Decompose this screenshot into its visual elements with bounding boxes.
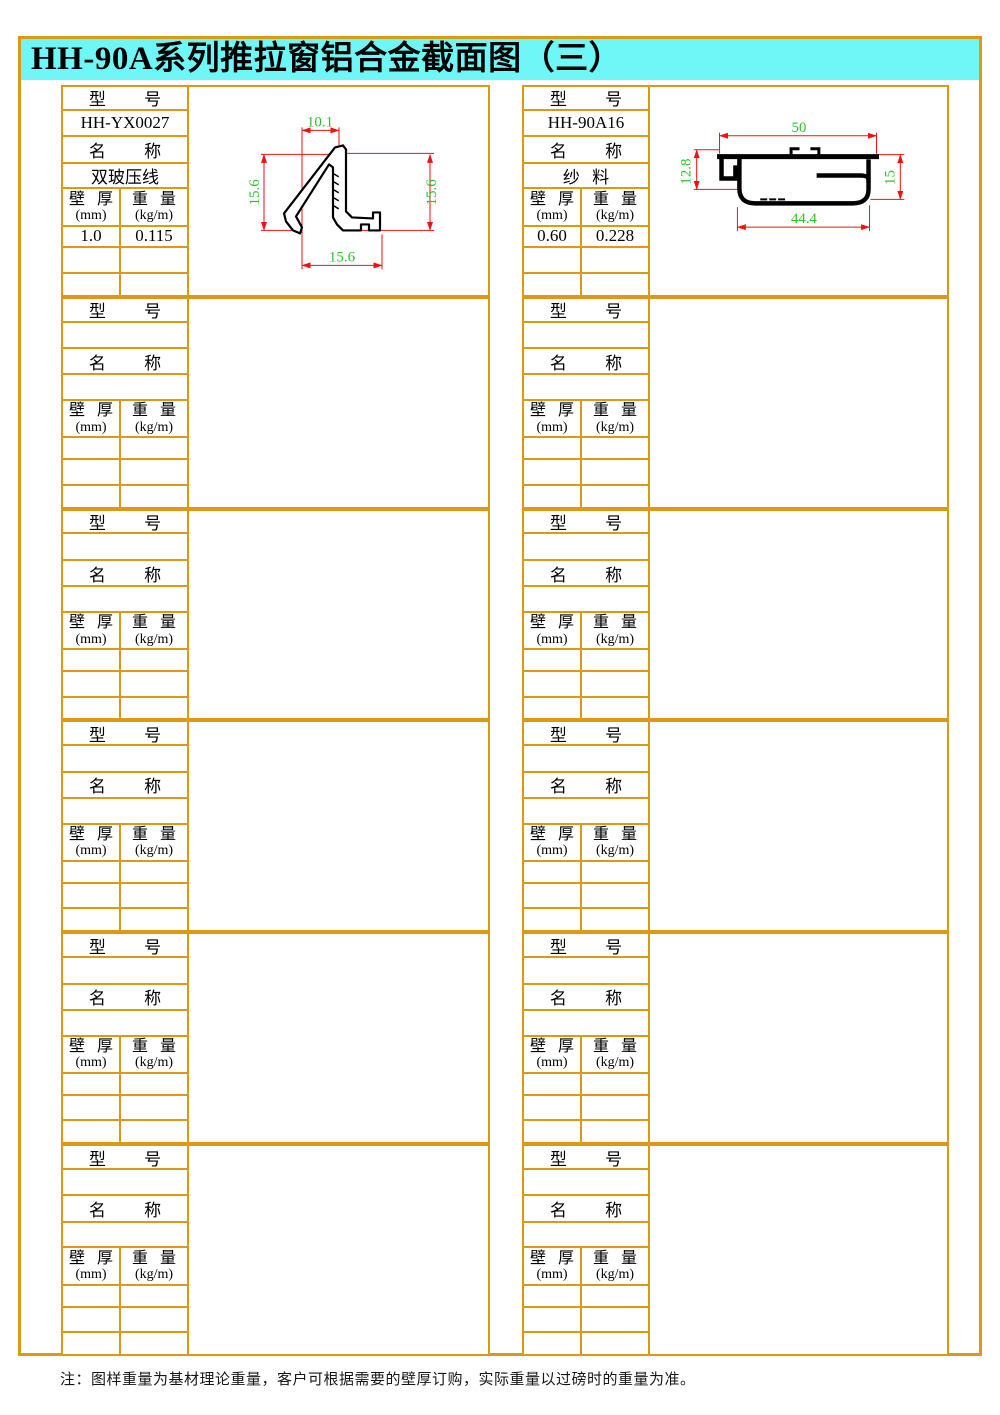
thickness-header-cell: 壁 厚 (mm) (524, 1037, 582, 1072)
spare-row-cell (524, 248, 582, 272)
spare-row-cell (63, 274, 121, 295)
weight-unit-label: (kg/m) (135, 1267, 173, 1282)
profile-block: 型 号 HH-90A16 名 称 纱 料 壁 厚 (mm) 重 量 (kg/m)… (522, 85, 949, 297)
weight-header-cell: 重 量 (kg/m) (582, 1248, 648, 1283)
dim-label-bottom: 15.6 (329, 249, 356, 265)
name-header-cell: 名 称 (524, 1196, 648, 1220)
drawing-cell (650, 722, 947, 930)
spare-row-cell (63, 698, 121, 719)
profile-left-hook (722, 157, 736, 179)
weight-value-cell (121, 862, 187, 882)
name-value-cell (524, 1223, 648, 1247)
model-header-cell: 型 号 (63, 934, 187, 956)
model-header-cell: 型 号 (63, 299, 187, 321)
name-value-cell (524, 1011, 648, 1035)
thickness-unit-label: (mm) (75, 632, 106, 647)
spec-mini-table: 型 号 名 称 壁 厚 (mm) 重 量 (kg/m) (524, 934, 650, 1142)
drawing-cell (189, 299, 488, 507)
profile-block: 型 号 名 称 壁 厚 (mm) 重 量 (kg/m) (61, 720, 490, 932)
spare-row-cell (524, 1121, 582, 1142)
thickness-header-label: 壁 厚 (69, 614, 113, 631)
thickness-header-cell: 壁 厚 (mm) (524, 1248, 582, 1283)
spare-row-cell (524, 460, 582, 484)
name-header-cell: 名 称 (524, 137, 648, 161)
thickness-unit-label: (mm) (536, 208, 567, 223)
thickness-value-cell (524, 650, 582, 670)
thickness-value-cell (524, 1286, 582, 1306)
thickness-header-label: 壁 厚 (69, 1038, 113, 1055)
weight-header-label: 重 量 (593, 191, 637, 208)
thickness-value-cell: 0.60 (524, 227, 582, 247)
thickness-value-cell: 1.0 (63, 227, 121, 247)
weight-unit-label: (kg/m) (596, 1055, 634, 1070)
page-title: HH-90A系列推拉窗铝合金截面图（三） (21, 43, 622, 76)
profile-block: 型 号 名 称 壁 厚 (mm) 重 量 (kg/m) (61, 1144, 490, 1356)
dim-label-left: 15.6 (247, 179, 263, 206)
drawing-cell (650, 511, 947, 719)
footer-note: 注：图样重量为基材理论重量，客户可根据需要的壁厚订购，实际重量以过磅时的重量为准… (60, 1368, 970, 1389)
dim-label-bottom: 44.4 (791, 211, 818, 227)
thickness-header-label: 壁 厚 (530, 402, 574, 419)
thickness-value-cell (63, 1286, 121, 1306)
weight-header-cell: 重 量 (kg/m) (121, 613, 187, 648)
spec-mini-table: 型 号 名 称 壁 厚 (mm) 重 量 (kg/m) (524, 1146, 650, 1354)
weight-header-cell: 重 量 (kg/m) (121, 401, 187, 436)
spare-row-cell (121, 1308, 187, 1332)
model-value-cell (524, 958, 648, 982)
profile-body (739, 160, 868, 204)
spare-row-cell (582, 460, 648, 484)
model-value-cell (63, 958, 187, 982)
thickness-header-cell: 壁 厚 (mm) (63, 189, 121, 224)
weight-header-label: 重 量 (593, 1250, 637, 1267)
weight-value-cell (582, 1286, 648, 1306)
spare-row-cell (121, 248, 187, 272)
name-header-cell: 名 称 (524, 773, 648, 797)
model-value-cell: HH-90A16 (524, 111, 648, 135)
weight-header-label: 重 量 (132, 614, 176, 631)
thickness-value-cell (524, 1074, 582, 1094)
drawing-cell (189, 1146, 488, 1354)
dim-label-top: 50 (792, 120, 807, 136)
model-header-cell: 型 号 (524, 722, 648, 744)
weight-header-label: 重 量 (132, 191, 176, 208)
spare-row-cell (582, 1308, 648, 1332)
model-header-cell: 型 号 (63, 1146, 187, 1168)
name-value-cell (524, 375, 648, 399)
dim-label-top: 10.1 (307, 114, 333, 130)
model-header-cell: 型 号 (63, 722, 187, 744)
model-header-cell: 型 号 (524, 87, 648, 109)
profile-block: 型 号 名 称 壁 厚 (mm) 重 量 (kg/m) (522, 1144, 949, 1356)
name-header-cell: 名 称 (63, 349, 187, 373)
dim-label-right: 15 (882, 170, 898, 185)
thickness-unit-label: (mm) (75, 843, 106, 858)
spec-mini-table: 型 号 名 称 壁 厚 (mm) 重 量 (kg/m) (63, 722, 189, 930)
thickness-header-cell: 壁 厚 (mm) (63, 613, 121, 648)
weight-unit-label: (kg/m) (135, 1055, 173, 1070)
spare-row-cell (63, 672, 121, 696)
name-header-cell: 名 称 (63, 773, 187, 797)
weight-value-cell: 0.228 (582, 227, 648, 247)
weight-header-label: 重 量 (132, 826, 176, 843)
thickness-header-label: 壁 厚 (530, 1038, 574, 1055)
spare-row-cell (582, 1333, 648, 1354)
spare-row-cell (582, 909, 648, 930)
name-header-cell: 名 称 (524, 349, 648, 373)
name-header-cell: 名 称 (63, 985, 187, 1009)
name-value-cell (524, 799, 648, 823)
weight-unit-label: (kg/m) (596, 208, 634, 223)
drawing-cell (650, 1146, 947, 1354)
weight-header-cell: 重 量 (kg/m) (582, 401, 648, 436)
thickness-unit-label: (mm) (75, 420, 106, 435)
thickness-unit-label: (mm) (536, 1267, 567, 1282)
name-header-cell: 名 称 (63, 561, 187, 585)
weight-unit-label: (kg/m) (135, 843, 173, 858)
thickness-value-cell (63, 862, 121, 882)
weight-header-cell: 重 量 (kg/m) (582, 613, 648, 648)
spare-row-cell (63, 1333, 121, 1354)
model-value-cell (63, 323, 187, 347)
model-value-cell (524, 746, 648, 770)
name-value-cell (63, 799, 187, 823)
profile-drawing-yx0027: 10.1 15.6 15.6 15.6 (189, 87, 488, 295)
thickness-header-cell: 壁 厚 (mm) (63, 1037, 121, 1072)
spec-mini-table: 型 号 HH-YX0027 名 称 双玻压线 壁 厚 (mm) 重 量 (kg/… (63, 87, 189, 295)
weight-header-cell: 重 量 (kg/m) (582, 825, 648, 860)
weight-header-cell: 重 量 (kg/m) (121, 189, 187, 224)
spare-row-cell (582, 274, 648, 295)
weight-unit-label: (kg/m) (135, 632, 173, 647)
weight-header-cell: 重 量 (kg/m) (121, 1037, 187, 1072)
name-header-cell: 名 称 (63, 137, 187, 161)
weight-header-label: 重 量 (593, 614, 637, 631)
dim-label-right: 15.6 (424, 179, 440, 206)
thickness-header-cell: 壁 厚 (mm) (63, 1248, 121, 1283)
weight-header-cell: 重 量 (kg/m) (582, 189, 648, 224)
thickness-value-cell (524, 862, 582, 882)
spare-row-cell (524, 672, 582, 696)
model-value-cell (63, 746, 187, 770)
spare-row-cell (121, 1096, 187, 1120)
profile-outline (284, 145, 380, 233)
model-header-cell: 型 号 (63, 87, 187, 109)
spec-mini-table: 型 号 名 称 壁 厚 (mm) 重 量 (kg/m) (63, 1146, 189, 1354)
weight-header-cell: 重 量 (kg/m) (121, 1248, 187, 1283)
thickness-header-cell: 壁 厚 (mm) (524, 613, 582, 648)
spare-row-cell (582, 698, 648, 719)
thickness-unit-label: (mm) (536, 1055, 567, 1070)
extension-lines (261, 127, 434, 269)
thickness-header-cell: 壁 厚 (mm) (63, 825, 121, 860)
name-header-cell: 名 称 (524, 561, 648, 585)
model-header-cell: 型 号 (524, 1146, 648, 1168)
thickness-unit-label: (mm) (75, 208, 106, 223)
spare-row-cell (63, 1121, 121, 1142)
name-header-cell: 名 称 (524, 985, 648, 1009)
spare-row-cell (582, 1121, 648, 1142)
spare-row-cell (524, 1096, 582, 1120)
spare-row-cell (524, 909, 582, 930)
spare-row-cell (582, 1096, 648, 1120)
drawing-cell (189, 722, 488, 930)
weight-value-cell (582, 650, 648, 670)
spare-row-cell (63, 884, 121, 908)
spare-row-cell (524, 486, 582, 507)
spare-row-cell (524, 698, 582, 719)
spare-row-cell (582, 248, 648, 272)
model-value-cell (63, 1170, 187, 1194)
weight-value-cell (582, 438, 648, 458)
profile-block: 型 号 名 称 壁 厚 (mm) 重 量 (kg/m) (61, 932, 490, 1144)
spare-row-cell (582, 486, 648, 507)
profile-inner-lip (819, 176, 869, 180)
thickness-unit-label: (mm) (536, 843, 567, 858)
drawing-cell: 10.1 15.6 15.6 15.6 (189, 87, 488, 295)
profile-drawing-90a16: 50 12.8 15 44.4 (650, 87, 947, 295)
spare-row-cell (524, 274, 582, 295)
spec-mini-table: 型 号 名 称 壁 厚 (mm) 重 量 (kg/m) (63, 299, 189, 507)
model-header-cell: 型 号 (524, 511, 648, 533)
spec-mini-table: 型 号 名 称 壁 厚 (mm) 重 量 (kg/m) (63, 511, 189, 719)
thickness-value-cell (63, 1074, 121, 1094)
dim-label-left: 12.8 (679, 159, 695, 185)
profile-block: 型 号 名 称 壁 厚 (mm) 重 量 (kg/m) (522, 932, 949, 1144)
spare-row-cell (121, 909, 187, 930)
weight-value-cell: 0.115 (121, 227, 187, 247)
spare-row-cell (121, 884, 187, 908)
weight-header-label: 重 量 (132, 1038, 176, 1055)
spare-row-cell (121, 1333, 187, 1354)
drawing-cell (189, 934, 488, 1142)
weight-value-cell (121, 438, 187, 458)
spare-row-cell (524, 884, 582, 908)
weight-unit-label: (kg/m) (596, 1267, 634, 1282)
thickness-unit-label: (mm) (75, 1267, 106, 1282)
weight-value-cell (121, 1286, 187, 1306)
thickness-value-cell (63, 438, 121, 458)
spec-mini-table: 型 号 名 称 壁 厚 (mm) 重 量 (kg/m) (524, 722, 650, 930)
thickness-header-cell: 壁 厚 (mm) (63, 401, 121, 436)
spare-row-cell (63, 460, 121, 484)
model-value-cell: HH-YX0027 (63, 111, 187, 135)
weight-unit-label: (kg/m) (135, 208, 173, 223)
thickness-unit-label: (mm) (75, 1055, 106, 1070)
weight-value-cell (582, 1074, 648, 1094)
spare-row-cell (63, 486, 121, 507)
weight-header-cell: 重 量 (kg/m) (582, 1037, 648, 1072)
name-value-cell (524, 587, 648, 611)
right-column-table: 型 号 HH-90A16 名 称 纱 料 壁 厚 (mm) 重 量 (kg/m)… (522, 85, 949, 1356)
weight-header-cell: 重 量 (kg/m) (121, 825, 187, 860)
drawing-cell (189, 511, 488, 719)
thickness-header-label: 壁 厚 (69, 191, 113, 208)
thickness-header-label: 壁 厚 (69, 1250, 113, 1267)
spare-row-cell (63, 1308, 121, 1332)
weight-value-cell (121, 1074, 187, 1094)
thickness-header-cell: 壁 厚 (mm) (524, 825, 582, 860)
profile-block: 型 号 名 称 壁 厚 (mm) 重 量 (kg/m) (522, 297, 949, 509)
spec-mini-table: 型 号 HH-90A16 名 称 纱 料 壁 厚 (mm) 重 量 (kg/m)… (524, 87, 650, 295)
spare-row-cell (121, 672, 187, 696)
thickness-value-cell (524, 438, 582, 458)
weight-header-label: 重 量 (132, 402, 176, 419)
spare-row-cell (524, 1308, 582, 1332)
drawing-cell (650, 934, 947, 1142)
weight-unit-label: (kg/m) (596, 843, 634, 858)
profile-block: 型 号 HH-YX0027 名 称 双玻压线 壁 厚 (mm) 重 量 (kg/… (61, 85, 490, 297)
thickness-header-label: 壁 厚 (69, 402, 113, 419)
spare-row-cell (63, 248, 121, 272)
weight-value-cell (121, 650, 187, 670)
spare-row-cell (582, 672, 648, 696)
spare-row-cell (63, 909, 121, 930)
spare-row-cell (121, 1121, 187, 1142)
thickness-header-label: 壁 厚 (530, 614, 574, 631)
name-value-cell (63, 1011, 187, 1035)
left-column-table: 型 号 HH-YX0027 名 称 双玻压线 壁 厚 (mm) 重 量 (kg/… (61, 85, 490, 1356)
thickness-unit-label: (mm) (536, 632, 567, 647)
name-value-cell (63, 587, 187, 611)
name-value-cell (63, 375, 187, 399)
weight-unit-label: (kg/m) (135, 420, 173, 435)
model-value-cell (524, 1170, 648, 1194)
model-header-cell: 型 号 (63, 511, 187, 533)
spare-row-cell (121, 698, 187, 719)
thickness-header-label: 壁 厚 (530, 826, 574, 843)
thickness-value-cell (63, 650, 121, 670)
drawing-cell (650, 299, 947, 507)
weight-unit-label: (kg/m) (596, 420, 634, 435)
thickness-header-label: 壁 厚 (530, 1250, 574, 1267)
thickness-header-cell: 壁 厚 (mm) (524, 189, 582, 224)
profile-block: 型 号 名 称 壁 厚 (mm) 重 量 (kg/m) (61, 297, 490, 509)
spare-row-cell (121, 460, 187, 484)
model-value-cell (63, 534, 187, 558)
weight-header-label: 重 量 (593, 402, 637, 419)
spare-row-cell (121, 486, 187, 507)
weight-header-label: 重 量 (593, 1038, 637, 1055)
title-bar: HH-90A系列推拉窗铝合金截面图（三） (21, 39, 979, 80)
weight-header-label: 重 量 (593, 826, 637, 843)
spare-row-cell (63, 1096, 121, 1120)
drawing-cell: 50 12.8 15 44.4 (650, 87, 947, 295)
thickness-header-cell: 壁 厚 (mm) (524, 401, 582, 436)
profile-block: 型 号 名 称 壁 厚 (mm) 重 量 (kg/m) (61, 509, 490, 721)
model-value-cell (524, 534, 648, 558)
weight-unit-label: (kg/m) (596, 632, 634, 647)
model-header-cell: 型 号 (524, 934, 648, 956)
spec-mini-table: 型 号 名 称 壁 厚 (mm) 重 量 (kg/m) (63, 934, 189, 1142)
name-value-cell (63, 1223, 187, 1247)
thickness-header-label: 壁 厚 (530, 191, 574, 208)
model-value-cell (524, 323, 648, 347)
spare-row-cell (524, 1333, 582, 1354)
spec-mini-table: 型 号 名 称 壁 厚 (mm) 重 量 (kg/m) (524, 299, 650, 507)
name-value-cell: 双玻压线 (63, 164, 187, 188)
name-value-cell: 纱 料 (524, 164, 648, 188)
spare-row-cell (582, 884, 648, 908)
profile-block: 型 号 名 称 壁 厚 (mm) 重 量 (kg/m) (522, 720, 949, 932)
spec-mini-table: 型 号 名 称 壁 厚 (mm) 重 量 (kg/m) (524, 511, 650, 719)
thickness-header-label: 壁 厚 (69, 826, 113, 843)
weight-value-cell (582, 862, 648, 882)
model-header-cell: 型 号 (524, 299, 648, 321)
thickness-unit-label: (mm) (536, 420, 567, 435)
spare-row-cell (121, 274, 187, 295)
profile-block: 型 号 名 称 壁 厚 (mm) 重 量 (kg/m) (522, 509, 949, 721)
name-header-cell: 名 称 (63, 1196, 187, 1220)
weight-header-label: 重 量 (132, 1250, 176, 1267)
